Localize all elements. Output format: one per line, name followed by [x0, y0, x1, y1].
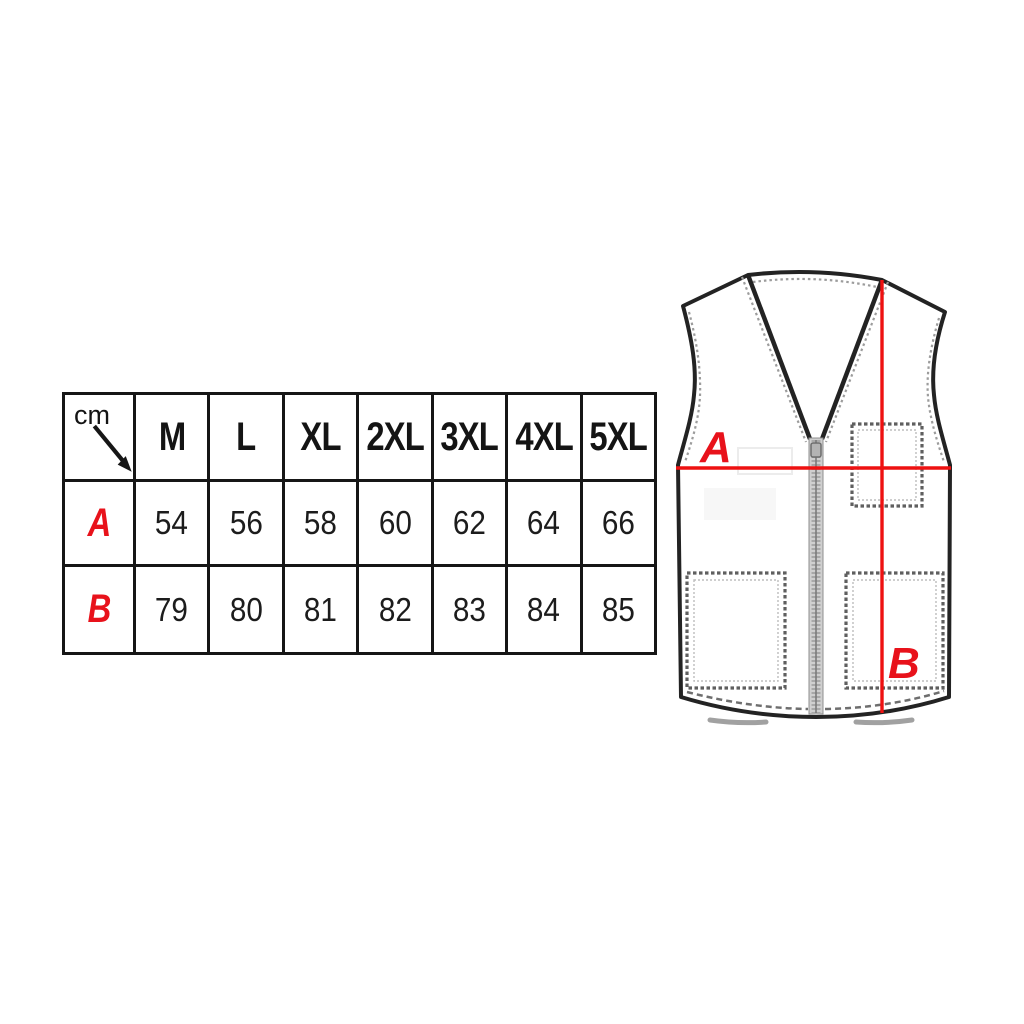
size-value-cell: 56: [209, 481, 283, 566]
page-canvas: cm M L XL 2XL 3XL 4XL 5XL A 54 56 58 60 …: [0, 0, 1024, 1024]
size-column-header-4xl: 4XL: [507, 394, 581, 481]
size-value-cell: 64: [507, 481, 581, 566]
size-value-cell: 80: [209, 566, 283, 654]
row-label-cell-a: A: [64, 481, 135, 566]
row-label-cell-b: B: [64, 566, 135, 654]
size-column-header-2xl: 2XL: [358, 394, 432, 481]
size-value-cell: 62: [432, 481, 506, 566]
size-value-cell: 58: [283, 481, 357, 566]
size-column-header-xl: XL: [283, 394, 357, 481]
size-value-cell: 83: [432, 566, 506, 654]
measurement-row-b: B 79 80 81 82 83 84 85: [64, 566, 656, 654]
size-table: cm M L XL 2XL 3XL 4XL 5XL A 54 56 58 60 …: [62, 392, 657, 655]
zipper-slider: [811, 443, 821, 457]
size-column-header-m: M: [135, 394, 209, 481]
size-value-cell: 79: [135, 566, 209, 654]
size-value-cell: 54: [135, 481, 209, 566]
hem-shadow-right: [856, 720, 912, 723]
lower-pocket-left-stitch: [687, 573, 785, 688]
size-value-cell: 84: [507, 566, 581, 654]
size-column-header-3xl: 3XL: [432, 394, 506, 481]
row-label-b: B: [87, 587, 111, 632]
vest-diagram: A B: [650, 250, 970, 740]
chest-pocket: [852, 424, 922, 506]
size-column-header-5xl: 5XL: [581, 394, 655, 481]
hem-shadow-left: [710, 720, 766, 723]
size-value-cell: 82: [358, 566, 432, 654]
measurement-row-a: A 54 56 58 60 62 64 66: [64, 481, 656, 566]
row-label-a: A: [87, 501, 111, 546]
size-value-cell: 60: [358, 481, 432, 566]
size-header-row: cm M L XL 2XL 3XL 4XL 5XL: [64, 394, 656, 481]
chest-pocket-stitch: [852, 424, 922, 506]
size-value-cell: 81: [283, 566, 357, 654]
measure-label-a: A: [699, 423, 732, 472]
diagonal-arrow-icon: [65, 395, 133, 479]
ghost-artifact: [704, 488, 776, 520]
size-value-cell: 85: [581, 566, 655, 654]
unit-cell: cm: [64, 394, 135, 481]
measure-label-b: B: [888, 639, 920, 688]
lower-pocket-left: [687, 573, 785, 688]
size-column-header-l: L: [209, 394, 283, 481]
size-value-cell: 66: [581, 481, 655, 566]
